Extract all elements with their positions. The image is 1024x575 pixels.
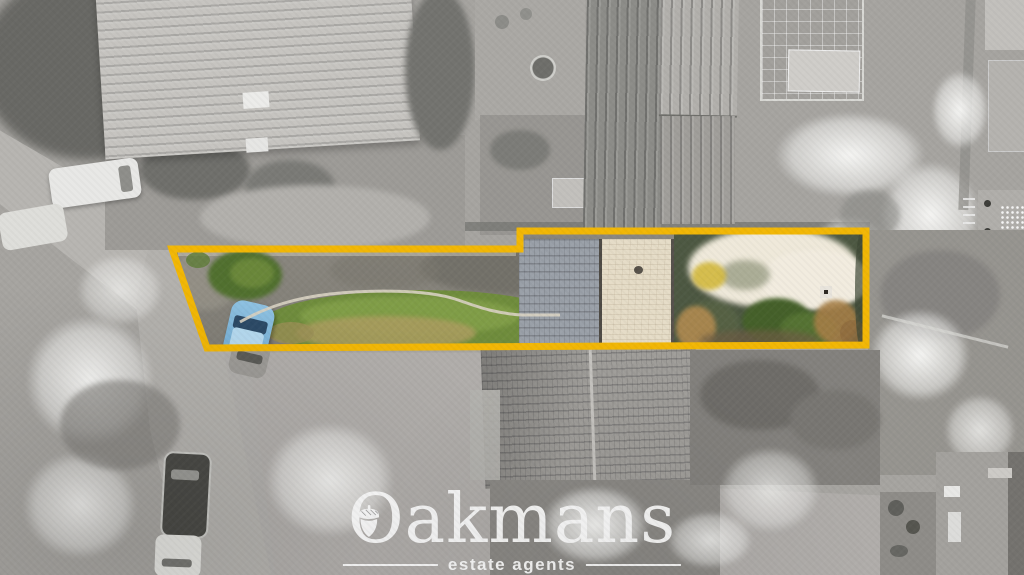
garden-box-dot bbox=[824, 290, 828, 294]
lawn-dry-patch bbox=[296, 316, 476, 350]
dormer-window bbox=[242, 91, 269, 109]
garden-shadow bbox=[60, 380, 180, 470]
roof-cream-section bbox=[602, 239, 673, 351]
acorn-icon bbox=[356, 505, 382, 539]
lawn-gray bbox=[200, 185, 430, 250]
planter bbox=[520, 8, 532, 20]
bare-tree bbox=[920, 55, 1000, 165]
white-car bbox=[154, 534, 201, 575]
patio-furniture bbox=[888, 500, 904, 516]
garden-shed-box bbox=[788, 49, 861, 92]
main-house-rear-roof bbox=[481, 341, 701, 488]
shrub-gray bbox=[490, 130, 550, 170]
neighbour-roof-right-low bbox=[660, 116, 735, 224]
paving-top-right bbox=[985, 0, 1024, 50]
watermark-logo: Oakmans estate agents bbox=[343, 486, 681, 575]
neighbour-roof-top-left bbox=[95, 0, 420, 159]
brand-wordmark: Oakmans bbox=[343, 486, 681, 554]
shrub-green bbox=[186, 252, 210, 268]
roof-vent bbox=[634, 266, 643, 274]
hedge bbox=[405, 0, 475, 150]
roof-slate-section bbox=[519, 239, 602, 351]
bare-tree bbox=[60, 240, 180, 340]
neighbour-roof-right-light bbox=[659, 0, 739, 118]
lawn-dry-patch bbox=[268, 322, 314, 344]
blossom-gap bbox=[720, 260, 770, 290]
tagline-rule-right bbox=[586, 564, 681, 567]
van-windshield bbox=[118, 165, 134, 192]
shed-dot bbox=[984, 200, 991, 207]
car-windshield bbox=[162, 558, 192, 567]
tagline-rule-left bbox=[343, 564, 438, 567]
window bbox=[988, 468, 1012, 478]
dark-car bbox=[160, 451, 212, 539]
garden-box bbox=[820, 286, 832, 298]
car-windshield bbox=[171, 469, 199, 480]
bare-soil bbox=[700, 330, 820, 350]
shrub-green-light bbox=[230, 258, 274, 288]
aerial-photo: Oakmans estate agents bbox=[0, 0, 1024, 575]
damp-patch bbox=[330, 250, 440, 290]
planter bbox=[495, 15, 509, 29]
garden-table bbox=[530, 55, 556, 81]
neighbour-roof-right-dark bbox=[583, 0, 665, 231]
dormer-window bbox=[246, 137, 269, 153]
window bbox=[948, 512, 961, 542]
car-rear-window bbox=[236, 350, 263, 365]
patio-furniture bbox=[906, 520, 920, 534]
hedge-right-edge bbox=[855, 232, 867, 348]
ladder bbox=[963, 198, 975, 234]
window bbox=[944, 486, 960, 497]
side-path bbox=[470, 390, 500, 480]
patio-furniture bbox=[890, 545, 908, 557]
yellow-shrub bbox=[692, 262, 726, 290]
bare-tree bbox=[700, 430, 840, 550]
brand-text: Oakmans bbox=[348, 480, 676, 559]
